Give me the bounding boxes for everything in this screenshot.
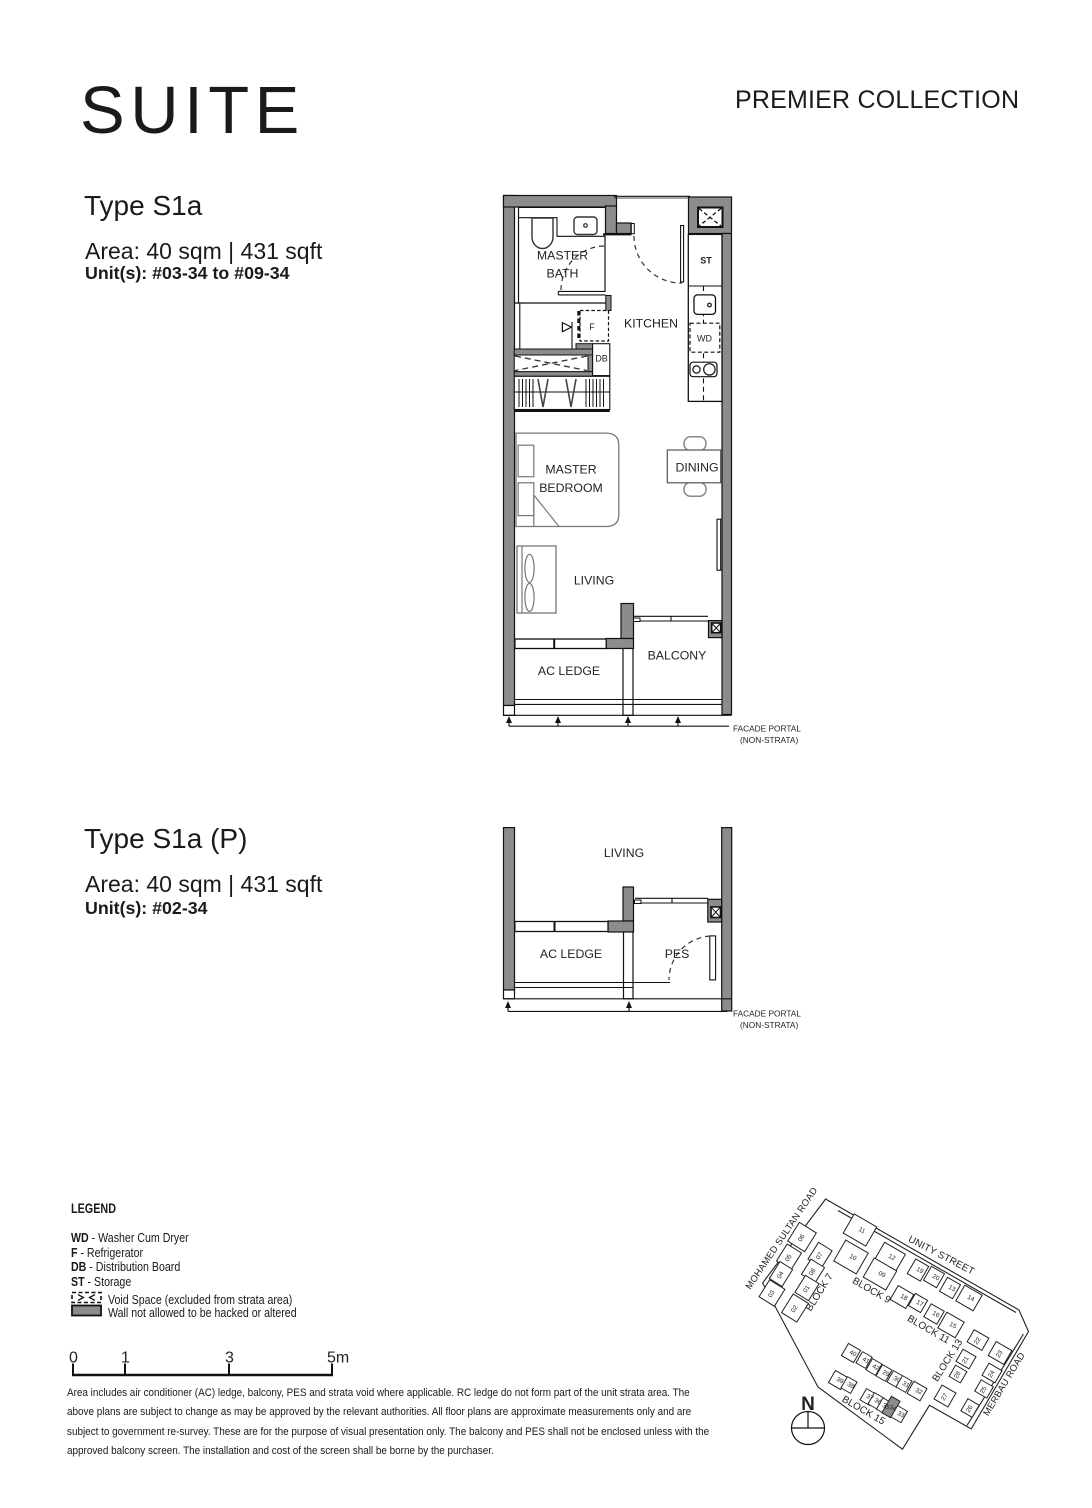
svg-text:ST: ST xyxy=(700,256,712,266)
svg-text:LIVING: LIVING xyxy=(604,846,644,860)
svg-text:PES: PES xyxy=(665,947,690,961)
svg-text:WD: WD xyxy=(697,334,712,344)
svg-text:FACADE PORTAL: FACADE PORTAL xyxy=(733,1009,801,1019)
svg-text:0: 0 xyxy=(69,1350,78,1367)
svg-text:KITCHEN: KITCHEN xyxy=(624,317,678,331)
svg-text:AC LEDGE: AC LEDGE xyxy=(538,664,600,678)
svg-text:BALCONY: BALCONY xyxy=(648,649,707,663)
svg-text:3: 3 xyxy=(225,1350,234,1367)
svg-text:FACADE PORTAL: FACADE PORTAL xyxy=(733,724,801,734)
svg-text:5m: 5m xyxy=(327,1350,349,1367)
svg-text:1: 1 xyxy=(121,1350,130,1367)
svg-text:MASTER: MASTER xyxy=(545,463,596,477)
svg-text:BATH: BATH xyxy=(547,267,579,281)
svg-text:AC LEDGE: AC LEDGE xyxy=(540,947,602,961)
svg-text:MASTER: MASTER xyxy=(537,249,588,263)
svg-text:F: F xyxy=(589,322,595,332)
svg-text:DB: DB xyxy=(595,354,608,364)
svg-text:BEDROOM: BEDROOM xyxy=(539,481,603,495)
svg-text:DINING: DINING xyxy=(675,461,718,475)
svg-text:N: N xyxy=(801,1394,815,1415)
svg-text:LIVING: LIVING xyxy=(574,574,614,588)
svg-text:(NON-STRATA): (NON-STRATA) xyxy=(740,1020,798,1030)
svg-text:(NON-STRATA): (NON-STRATA) xyxy=(740,735,798,745)
